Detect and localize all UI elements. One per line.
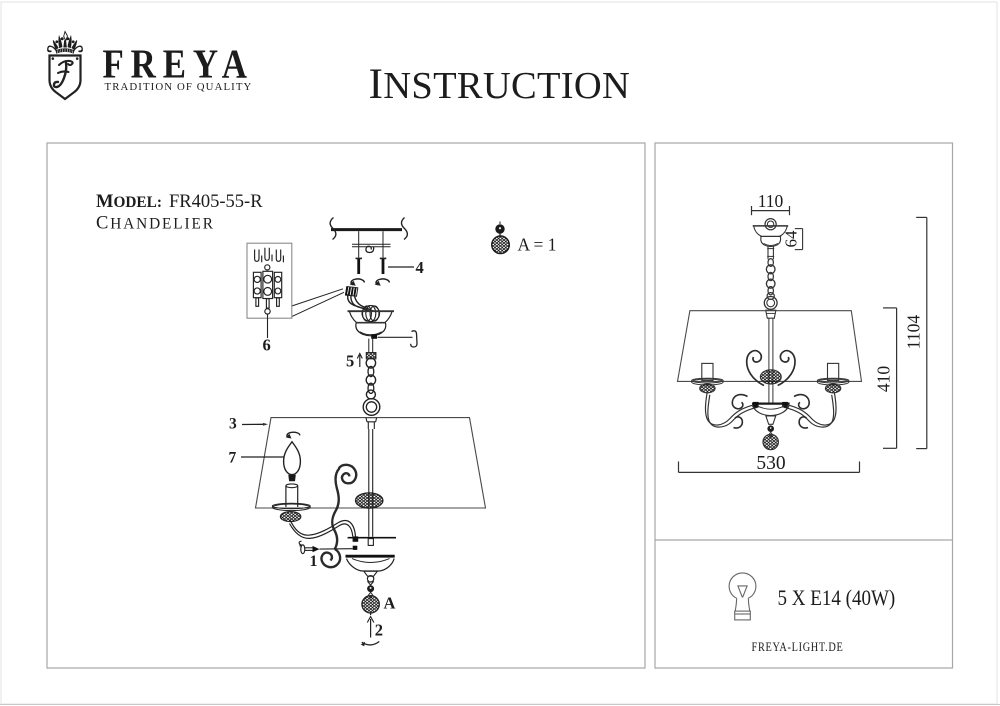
svg-text:5: 5 [346, 352, 354, 371]
svg-text:110: 110 [758, 191, 784, 211]
svg-text:1: 1 [310, 553, 318, 570]
svg-text:FREYA-LIGHT.DE: FREYA-LIGHT.DE [752, 641, 844, 654]
svg-text:1104: 1104 [904, 315, 924, 350]
svg-text:A: A [384, 594, 396, 613]
svg-text:4: 4 [416, 258, 424, 277]
svg-text:7: 7 [229, 450, 237, 467]
svg-text:6: 6 [263, 336, 271, 355]
svg-text:A = 1: A = 1 [518, 235, 557, 255]
svg-text:5 X E14 (40W): 5 X E14 (40W) [778, 587, 896, 611]
svg-text:INSTRUCTION: INSTRUCTION [369, 60, 631, 108]
svg-text:MODEL:: MODEL: [96, 192, 162, 212]
svg-text:CHANDELIER: CHANDELIER [96, 214, 215, 234]
svg-text:TRADITION OF QUALITY: TRADITION OF QUALITY [105, 81, 253, 93]
svg-text:2: 2 [375, 621, 383, 640]
svg-text:FR405-55-R: FR405-55-R [169, 192, 263, 212]
svg-text:3: 3 [229, 416, 237, 433]
svg-text:410: 410 [874, 366, 894, 393]
svg-text:530: 530 [756, 453, 785, 474]
svg-text:64: 64 [782, 230, 801, 248]
